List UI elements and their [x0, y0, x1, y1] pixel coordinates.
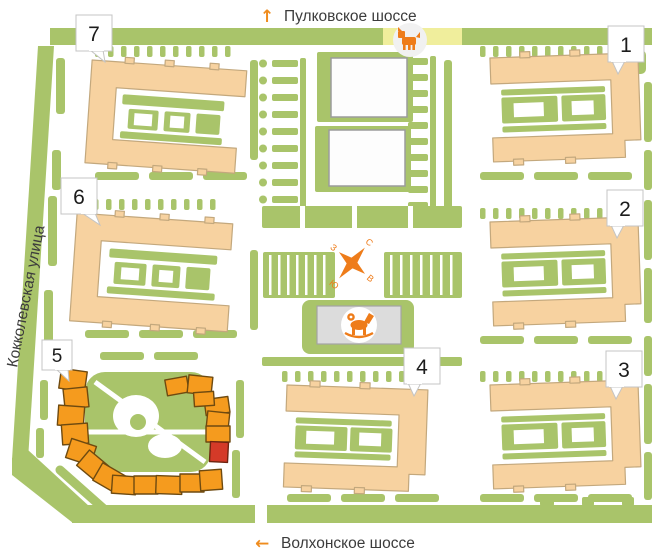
lawn-strip: [171, 199, 177, 210]
bottom-street-label: Волхонское шоссе: [281, 535, 415, 552]
marker-tail-join: [55, 367, 70, 371]
parking-divider: [450, 255, 453, 295]
lawn-strip: [184, 199, 190, 210]
lawn-strip: [597, 371, 603, 382]
lawn-strip: [287, 494, 331, 502]
lawn-strip: [272, 128, 298, 135]
building-5-section[interactable]: [134, 476, 158, 494]
courtyard-7: [120, 94, 225, 145]
lawn-strip: [360, 371, 366, 382]
marker-number: 1: [620, 34, 632, 57]
lawn-strip: [272, 77, 298, 84]
lawn-strip: [588, 336, 632, 344]
lawn-strip: [272, 94, 298, 101]
lawn-strip: [334, 371, 340, 382]
building-5-section[interactable]: [156, 476, 183, 495]
marker-number: 6: [73, 186, 85, 209]
bush: [259, 111, 267, 119]
lawn-strip: [347, 371, 353, 382]
compass-west-label: З: [328, 242, 339, 253]
lawn-strip: [85, 330, 129, 338]
lawn-strip: [272, 111, 298, 118]
lawn-strip: [197, 199, 203, 210]
west-arrow-icon: ←: [255, 534, 269, 553]
lawn-strip: [480, 494, 524, 502]
lawn-strip: [588, 494, 632, 502]
lawn-strip: [272, 196, 298, 203]
lawn-strip: [545, 208, 551, 219]
parking-divider: [278, 255, 281, 295]
building-marker-7[interactable]: 7: [76, 15, 112, 62]
service-building-2: [329, 130, 405, 186]
building-5-section[interactable]: [194, 391, 215, 406]
service-block: [300, 52, 452, 228]
lawn-strip: [145, 199, 151, 210]
lawn-strip: [480, 371, 486, 382]
site-plan-map: С Ю В З: [0, 0, 652, 553]
lawn-strip: [534, 336, 578, 344]
site-plan: С Ю В З: [0, 0, 652, 553]
lawn-strip: [225, 46, 231, 57]
lawn-strip: [395, 494, 439, 502]
lawn-strip: [532, 371, 538, 382]
marker-tail-join: [407, 381, 422, 385]
lawn-strip: [373, 371, 379, 382]
marker-tail-join: [610, 223, 625, 227]
parking-divider: [305, 255, 308, 295]
top-street-label: Пулковское шоссе: [284, 8, 417, 25]
lawn-strip: [584, 208, 590, 219]
lawn-strip: [132, 199, 138, 210]
parking-divider: [410, 255, 413, 295]
lawn-strip: [545, 371, 551, 382]
lawn-strip: [341, 494, 385, 502]
lawn-strip: [534, 494, 578, 502]
parking-divider: [420, 255, 423, 295]
lawn-strip: [212, 46, 218, 57]
playground: [302, 300, 414, 354]
parking-divider: [314, 255, 317, 295]
lawn-strip: [480, 336, 524, 344]
lawn-strip: [493, 46, 499, 57]
courtyard-3: [501, 413, 606, 460]
lawn-strip: [272, 145, 298, 152]
marker-number: 4: [416, 356, 428, 379]
lawn-strip: [321, 371, 327, 382]
marker-tail-join: [611, 59, 626, 63]
bush: [259, 60, 267, 68]
lawn-strip: [203, 172, 247, 180]
parking-divider: [269, 255, 272, 295]
lawn-strip: [186, 46, 192, 57]
bottom-road: [72, 505, 652, 523]
lawn-strip: [149, 172, 193, 180]
lawn-strip: [588, 172, 632, 180]
lawn-strip: [480, 172, 524, 180]
building-6[interactable]: [69, 208, 235, 336]
marker-tail-join: [89, 48, 104, 52]
lawn-strip: [584, 371, 590, 382]
bush: [259, 128, 267, 136]
lawn-strip: [95, 172, 139, 180]
marker-number: 5: [52, 346, 63, 367]
lawn-strip: [532, 46, 538, 57]
lawn-strip: [272, 162, 298, 169]
courtyard-2: [501, 250, 606, 297]
parking-divider: [430, 255, 433, 295]
lawn-strip: [506, 208, 512, 219]
lawn-strip: [160, 46, 166, 57]
lawn-strip: [106, 199, 112, 210]
parking-divider: [323, 255, 326, 295]
building-5-section[interactable]: [111, 475, 136, 495]
marker-tail-join: [609, 384, 624, 388]
lawn-strip: [199, 46, 205, 57]
service-building-1: [331, 58, 407, 117]
parking-divider: [287, 255, 290, 295]
building-4[interactable]: [283, 380, 428, 496]
north-arrow-icon: ↑: [260, 7, 274, 27]
lawn-strip: [558, 208, 564, 219]
marker-number: 2: [619, 198, 631, 221]
courtyard-1: [501, 86, 606, 133]
lawn-strip: [558, 371, 564, 382]
top-road: [50, 28, 652, 45]
bush: [259, 94, 267, 102]
building-5-section[interactable]: [165, 376, 189, 396]
lawn-strip: [147, 46, 153, 57]
lawn-strip: [119, 199, 125, 210]
lawn-strip: [210, 199, 216, 210]
lawn-strip: [506, 371, 512, 382]
bush: [259, 179, 267, 187]
lawn-strip: [532, 208, 538, 219]
courtyard-6: [107, 248, 218, 300]
marker-tail-join: [81, 211, 96, 215]
bush: [259, 145, 267, 153]
lawn-strip: [100, 352, 144, 360]
marker-number: 7: [88, 23, 100, 46]
marker-number: 3: [618, 359, 630, 382]
parking-divider: [390, 255, 393, 295]
lawn-strip: [386, 371, 392, 382]
lawn-strip: [480, 208, 486, 219]
amenity-block: С Ю В З: [262, 206, 462, 366]
building-5-section[interactable]: [206, 426, 230, 442]
lawn-strip: [272, 179, 298, 186]
lawn-strip: [480, 46, 486, 57]
lawn-strip: [282, 371, 288, 382]
lawn-strip: [534, 172, 578, 180]
lawn-strip: [295, 371, 301, 382]
lawn-strip: [134, 46, 140, 57]
lawn-strip: [506, 46, 512, 57]
parking-divider: [440, 255, 443, 295]
lawn-strip: [121, 46, 127, 57]
building-5-selected-section[interactable]: [209, 442, 228, 463]
parking-rows: [263, 252, 462, 298]
lawn-strip: [408, 122, 428, 129]
lawn-strip: [154, 352, 198, 360]
parking-divider: [296, 255, 299, 295]
bush: [259, 77, 267, 85]
lawn-strip: [493, 208, 499, 219]
parking-divider: [400, 255, 403, 295]
lawn-strip: [597, 208, 603, 219]
lawn-strip: [139, 330, 183, 338]
lawn-strip: [158, 199, 164, 210]
bush: [259, 162, 267, 170]
lawn-strip: [173, 46, 179, 57]
lawn-strip: [493, 371, 499, 382]
lawn-strip: [272, 60, 298, 67]
dog-walking-area: [393, 23, 427, 57]
building-marker-5[interactable]: 5: [42, 340, 72, 381]
building-5-section[interactable]: [199, 469, 222, 490]
compass-north-label: С: [364, 236, 376, 248]
building-7[interactable]: [85, 55, 247, 178]
courtyard-4: [294, 417, 392, 460]
compass-east-label: В: [365, 273, 376, 285]
bush: [259, 196, 267, 204]
